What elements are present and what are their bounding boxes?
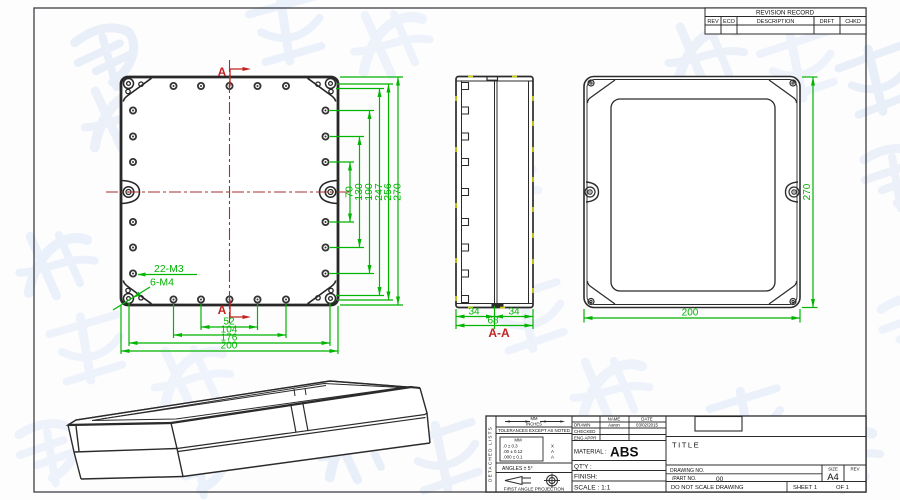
svg-text:SCALE : 1:1: SCALE : 1:1 (574, 484, 611, 491)
svg-text:A-A: A-A (488, 326, 510, 340)
svg-text:DO NOT SCALE DRAWING: DO NOT SCALE DRAWING (671, 485, 744, 491)
svg-text:DRAWN: DRAWN (574, 423, 590, 428)
svg-text:DRAWING NO.: DRAWING NO. (670, 468, 704, 474)
svg-text:QT'Y :: QT'Y : (574, 464, 592, 471)
svg-text:SHEET 1: SHEET 1 (793, 485, 817, 491)
svg-text:REV: REV (850, 467, 859, 472)
svg-text:TITLE: TITLE (672, 441, 700, 450)
svg-text:DATE: DATE (641, 417, 652, 422)
svg-text:22-M3: 22-M3 (154, 263, 184, 275)
svg-text:FIRST ANGLE PROJECTION: FIRST ANGLE PROJECTION (504, 486, 565, 491)
svg-text:Aaron: Aaron (608, 423, 620, 428)
svg-text:X: X (551, 444, 554, 449)
svg-text:MM: MM (514, 438, 522, 443)
svg-text:CHECKED: CHECKED (574, 429, 595, 434)
svg-text:A: A (218, 303, 227, 317)
svg-text:270: 270 (392, 183, 404, 201)
svg-text:.0 ± 0.3: .0 ± 0.3 (503, 444, 518, 449)
svg-text:FINISH:: FINISH: (574, 474, 598, 481)
svg-text:A: A (551, 455, 554, 460)
svg-text:REV: REV (707, 19, 719, 25)
svg-text:DRFT: DRFT (820, 19, 835, 25)
svg-text:A: A (218, 65, 227, 79)
svg-text:INCHES: INCHES (526, 422, 542, 427)
svg-text:68: 68 (487, 316, 499, 327)
svg-text:03/02/2015: 03/02/2015 (636, 423, 659, 428)
svg-text:DETACHED LISTS: DETACHED LISTS (488, 426, 493, 482)
svg-text:ANGLES ± 5°: ANGLES ± 5° (502, 466, 533, 472)
svg-text:A: A (551, 449, 554, 454)
svg-text:200: 200 (682, 308, 699, 319)
svg-text:.000 ± 0.1: .000 ± 0.1 (503, 455, 523, 460)
svg-text:MM: MM (531, 416, 538, 421)
svg-text:200: 200 (221, 341, 238, 352)
svg-text:ABS: ABS (610, 445, 639, 460)
svg-text:MATERIAL :: MATERIAL : (574, 450, 607, 456)
svg-text:270: 270 (802, 183, 813, 200)
svg-text:SIZE: SIZE (828, 467, 838, 472)
svg-text:34: 34 (508, 307, 520, 318)
svg-text:34: 34 (468, 307, 480, 318)
svg-text:ECO: ECO (723, 19, 736, 25)
svg-text:NAME: NAME (608, 417, 621, 422)
svg-text:A4: A4 (827, 472, 839, 483)
svg-text:.00 ± 0.12: .00 ± 0.12 (503, 449, 523, 454)
svg-text:OF 1: OF 1 (836, 485, 849, 491)
svg-text:ENG APPR: ENG APPR (574, 435, 596, 440)
svg-text:DESCRIPTION: DESCRIPTION (757, 19, 795, 25)
svg-text:REVISION RECORD: REVISION RECORD (756, 10, 815, 17)
svg-text:6-M4: 6-M4 (150, 277, 174, 289)
svg-text:TOLERANCES EXCEPT AS NOTED: TOLERANCES EXCEPT AS NOTED (498, 428, 570, 433)
svg-text:CHKD: CHKD (845, 19, 861, 25)
